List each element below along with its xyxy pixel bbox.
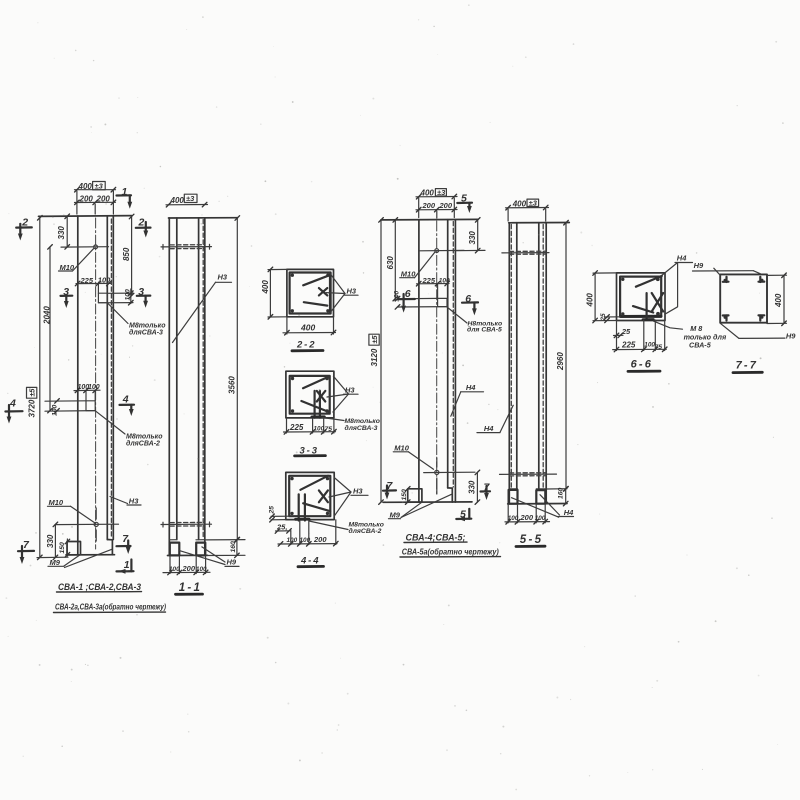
svg-text:100: 100 xyxy=(314,425,325,432)
svg-text:М9: М9 xyxy=(50,558,61,567)
svg-text:400: 400 xyxy=(261,280,270,295)
svg-text:Н3: Н3 xyxy=(129,497,139,506)
svg-text:400: 400 xyxy=(420,189,435,198)
svg-text:4 - 4: 4 - 4 xyxy=(300,555,319,566)
svg-text:400: 400 xyxy=(170,196,185,205)
svg-text:Н4: Н4 xyxy=(484,424,494,433)
svg-text:дляСВА-3: дляСВА-3 xyxy=(129,329,163,337)
svg-text:1: 1 xyxy=(124,559,130,571)
svg-text:150: 150 xyxy=(401,489,408,501)
svg-text:6 - 6: 6 - 6 xyxy=(631,358,652,370)
svg-text:160: 160 xyxy=(558,487,565,499)
svg-text:400: 400 xyxy=(512,199,527,208)
svg-text:М10: М10 xyxy=(49,498,64,507)
svg-text:330: 330 xyxy=(467,480,476,494)
svg-text:100: 100 xyxy=(535,515,546,522)
svg-text:дляСВА-2: дляСВА-2 xyxy=(349,527,382,535)
svg-text:1 - 1: 1 - 1 xyxy=(179,582,200,594)
svg-text:200: 200 xyxy=(313,535,327,544)
svg-text:400: 400 xyxy=(774,293,783,308)
svg-text:100: 100 xyxy=(98,275,111,284)
svg-text:3120: 3120 xyxy=(370,348,379,366)
svg-text:100: 100 xyxy=(287,537,298,544)
svg-text:±3: ±3 xyxy=(437,188,446,197)
svg-text:100: 100 xyxy=(300,537,311,544)
svg-text:400: 400 xyxy=(300,322,315,332)
svg-text:100: 100 xyxy=(124,289,131,301)
svg-text:Н4: Н4 xyxy=(564,508,574,517)
svg-text:Н4: Н4 xyxy=(677,254,687,263)
svg-text:±3: ±3 xyxy=(95,182,104,191)
svg-text:25: 25 xyxy=(268,506,275,515)
svg-text:СВА-5: СВА-5 xyxy=(689,340,712,349)
svg-text:2960: 2960 xyxy=(556,352,565,371)
svg-text:75: 75 xyxy=(655,344,663,351)
svg-text:200: 200 xyxy=(79,195,94,204)
svg-text:200: 200 xyxy=(96,195,111,204)
svg-text:3560: 3560 xyxy=(227,376,236,394)
svg-text:200: 200 xyxy=(520,513,534,522)
svg-text:150: 150 xyxy=(59,542,66,554)
svg-text:±3: ±3 xyxy=(186,194,195,203)
svg-text:330: 330 xyxy=(468,231,477,245)
svg-text:25: 25 xyxy=(621,327,631,336)
svg-text:630: 630 xyxy=(386,256,395,270)
svg-text:330: 330 xyxy=(46,534,55,548)
svg-text:75: 75 xyxy=(325,426,333,433)
svg-text:225: 225 xyxy=(621,340,636,349)
svg-text:СВА-2а,СВА-3а(обратно чертежу): СВА-2а,СВА-3а(обратно чертежу) xyxy=(55,603,166,612)
svg-text:2040: 2040 xyxy=(43,306,52,325)
svg-text:Н9: Н9 xyxy=(786,332,796,341)
svg-text:200: 200 xyxy=(182,564,196,573)
svg-text:4: 4 xyxy=(122,393,129,405)
svg-text:Н4: Н4 xyxy=(466,383,476,392)
svg-text:Н9: Н9 xyxy=(694,261,704,270)
svg-text:2 - 2: 2 - 2 xyxy=(296,340,315,351)
svg-text:Н3: Н3 xyxy=(353,486,363,495)
svg-text:160: 160 xyxy=(230,541,237,553)
svg-text:225: 225 xyxy=(289,423,304,432)
svg-text:±5: ±5 xyxy=(28,388,37,397)
svg-text:дляСВА-3: дляСВА-3 xyxy=(345,424,378,432)
svg-text:3720: 3720 xyxy=(27,399,36,417)
svg-text:СВА-4;СВА-5;: СВА-4;СВА-5; xyxy=(406,533,466,543)
svg-text:для СВА-5: для СВА-5 xyxy=(467,326,502,334)
svg-text:СВА-5а(обратно чертежу): СВА-5а(обратно чертежу) xyxy=(402,548,499,557)
svg-text:100: 100 xyxy=(508,515,519,522)
svg-text:400: 400 xyxy=(78,182,93,191)
svg-text:850: 850 xyxy=(122,247,131,261)
svg-text:М8только: М8только xyxy=(129,323,166,330)
svg-text:225: 225 xyxy=(422,276,436,285)
svg-text:Н3: Н3 xyxy=(218,273,228,282)
svg-text:100: 100 xyxy=(88,384,100,391)
svg-text:5 - 5: 5 - 5 xyxy=(520,534,542,546)
svg-text:100: 100 xyxy=(439,277,450,284)
svg-text:200: 200 xyxy=(439,201,453,210)
svg-text:330: 330 xyxy=(57,226,66,240)
svg-text:100: 100 xyxy=(169,566,180,573)
svg-text:200: 200 xyxy=(422,201,436,210)
svg-text:дляСВА-2: дляСВА-2 xyxy=(126,440,160,448)
svg-text:±3: ±3 xyxy=(529,198,538,207)
svg-text:225: 225 xyxy=(80,276,94,285)
svg-text:±5: ±5 xyxy=(370,335,379,344)
svg-text:Н3: Н3 xyxy=(345,385,355,394)
svg-text:7 - 7: 7 - 7 xyxy=(736,359,757,371)
svg-text:СВА-1 ;СВА-2,СВА-3: СВА-1 ;СВА-2,СВА-3 xyxy=(58,582,141,592)
svg-text:Н9: Н9 xyxy=(227,558,237,567)
svg-text:Н3: Н3 xyxy=(347,287,357,296)
svg-text:М8только: М8только xyxy=(126,434,163,441)
svg-text:400: 400 xyxy=(586,293,595,308)
svg-text:100: 100 xyxy=(196,566,207,573)
